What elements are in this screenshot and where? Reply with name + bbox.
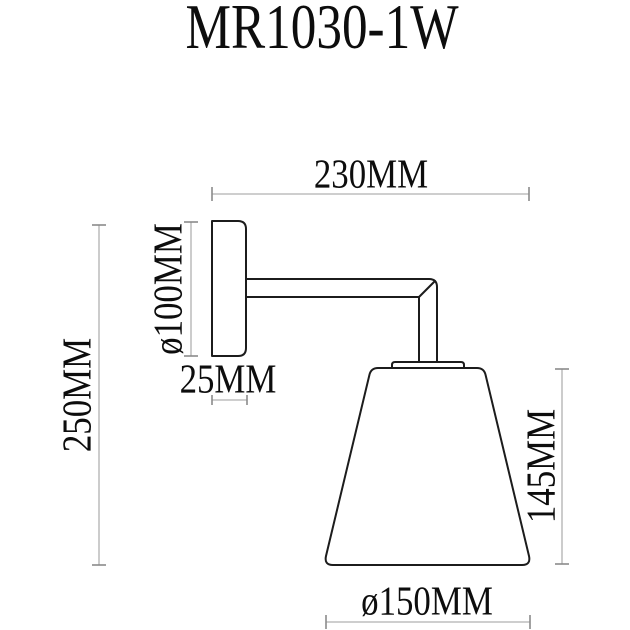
dim-label-depth-total: 230MM xyxy=(314,154,428,195)
mounting-arm-outer xyxy=(246,279,437,362)
dim-label-shade-height: 145MM xyxy=(521,409,562,523)
dim-label-backplate-diameter: ø100MM xyxy=(148,223,189,355)
wall-plate xyxy=(212,221,246,356)
mounting-arm-inner xyxy=(246,297,419,362)
technical-drawing xyxy=(0,0,630,630)
lamp-shade xyxy=(326,368,530,565)
dim-label-shade-diameter: ø150MM xyxy=(361,581,493,622)
mounting-arm-miter xyxy=(419,281,435,297)
dim-label-height-total: 250MM xyxy=(57,338,98,452)
page-title: MR1030-1W xyxy=(185,0,458,59)
dimension-drawing-page: MR1030-1W 230MM ø100MM 25MM 250MM 145MM … xyxy=(0,0,630,630)
dim-label-backplate-thickness: 25MM xyxy=(180,359,277,400)
